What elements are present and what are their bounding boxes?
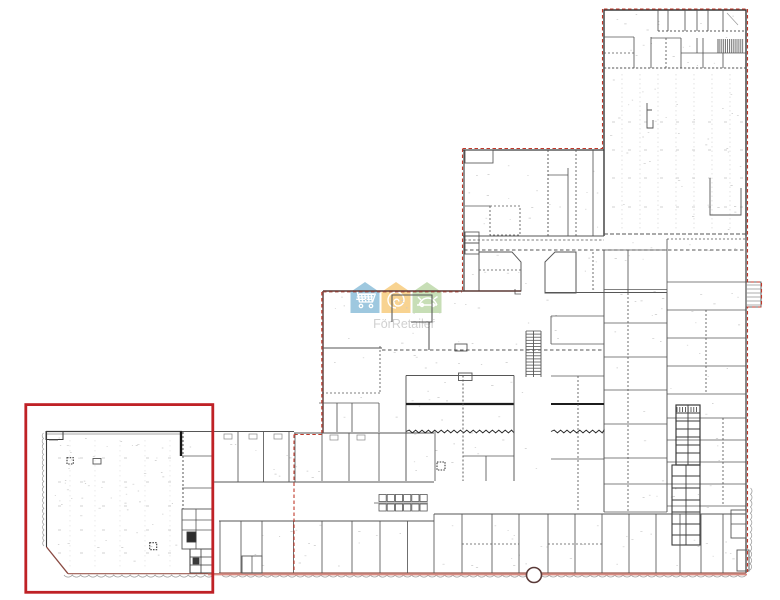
svg-text:FörRetailer: FörRetailer <box>373 317 435 331</box>
